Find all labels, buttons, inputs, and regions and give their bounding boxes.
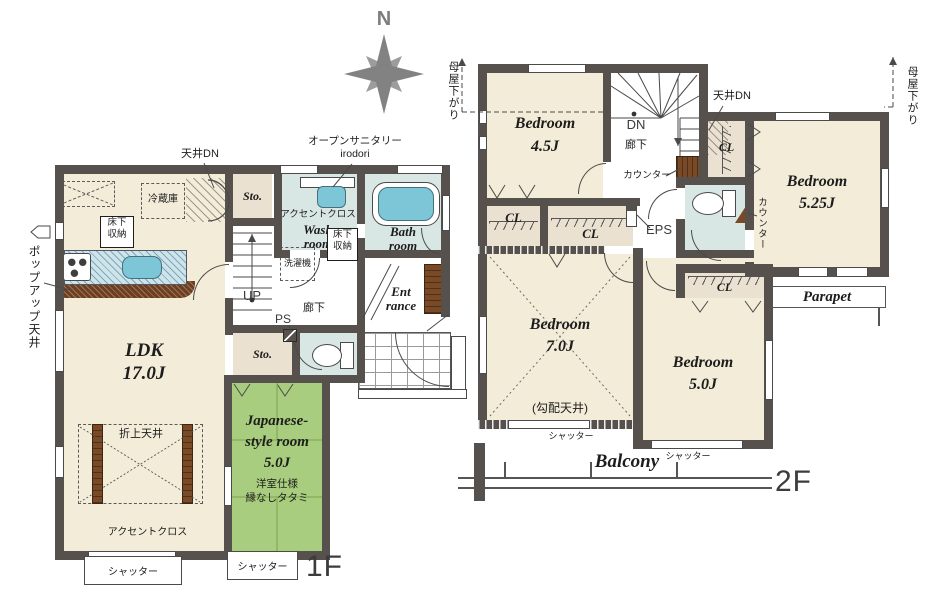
wall xyxy=(441,165,450,317)
wall xyxy=(676,177,754,185)
down-label: DN xyxy=(620,118,652,133)
accent-cross-ldk-label: アクセントクロス xyxy=(100,527,195,539)
window xyxy=(775,112,830,121)
open-sanitary-sublabel: irodori xyxy=(298,148,412,160)
wall xyxy=(55,165,450,174)
pantry-dashed-box xyxy=(57,181,115,207)
wall xyxy=(274,250,290,258)
window xyxy=(55,222,64,240)
window xyxy=(836,267,868,277)
shutter-label: シャッター xyxy=(238,558,288,573)
storage-2-label: Sto. xyxy=(233,348,292,360)
hallway-label-1f: 廊下 xyxy=(296,302,332,315)
shutter-box: シャッター xyxy=(227,551,298,580)
wall xyxy=(478,246,605,254)
stove-icon xyxy=(63,253,91,281)
window xyxy=(508,420,590,429)
closet-1-label: CL xyxy=(487,211,540,224)
wall xyxy=(676,264,685,298)
floor-2-label: 2F xyxy=(775,465,812,499)
counter-label-toilet: カウンター xyxy=(752,192,766,254)
wall xyxy=(478,64,708,73)
bedroom-45-name: Bedroom xyxy=(497,116,593,132)
bathtub-water xyxy=(378,187,434,221)
floor-1-label: 1F xyxy=(306,550,343,584)
kitchen-sink-icon xyxy=(122,256,162,279)
refrigerator-label: 冷蔵庫 xyxy=(142,194,184,206)
window xyxy=(479,110,487,124)
parapet-stub xyxy=(878,308,880,326)
balcony-post xyxy=(676,462,678,478)
up-label: UP xyxy=(236,289,268,304)
door-arc xyxy=(648,189,677,219)
wall xyxy=(224,375,365,383)
ceiling-down-closet-hatch xyxy=(186,178,230,222)
balcony-rail xyxy=(458,487,772,489)
ceiling-down-label-2f: 天井DN xyxy=(704,90,760,103)
japanese-room-label-1: Japanese- xyxy=(227,414,327,429)
compass-north-label: N xyxy=(370,8,398,31)
window xyxy=(55,310,64,372)
window xyxy=(479,136,487,150)
pipe-space-box xyxy=(283,329,297,342)
balcony-label: Balcony xyxy=(585,452,669,471)
accent-cross-wash-label: アクセントクロス xyxy=(272,210,364,221)
underfloor-storage-line2: 収納 xyxy=(328,241,357,253)
bedroom-50-name: Bedroom xyxy=(655,355,751,371)
parapet-label: Parapet xyxy=(782,290,872,305)
hallway-label-2f: 廊下 xyxy=(618,139,654,152)
underfloor-storage-box: 床下 収納 xyxy=(327,228,358,261)
bedroom-70-size: 7.0J xyxy=(512,339,608,355)
japanese-room-size: 5.0J xyxy=(227,456,327,471)
shutter-label-2f: シャッター xyxy=(663,451,713,461)
moya-sagari-label-right: 母屋下がり xyxy=(902,50,918,142)
washing-machine-label: 洗濯機 xyxy=(281,258,314,268)
wall xyxy=(540,198,548,248)
bedroom-45-size: 4.5J xyxy=(497,139,593,155)
window xyxy=(280,165,318,174)
window xyxy=(528,64,586,73)
wall xyxy=(357,258,365,383)
toilet-bowl-icon xyxy=(692,192,724,215)
coffered-ceiling-label: 折上天井 xyxy=(110,428,172,441)
window xyxy=(397,165,443,174)
eps-label: EPS xyxy=(640,223,678,238)
room-bedroom-525 xyxy=(754,121,880,267)
room-bedroom-70 xyxy=(487,254,633,420)
eps-shaft xyxy=(626,204,637,227)
bedroom-50-size: 5.0J xyxy=(655,377,751,393)
underfloor-storage-line2: 収納 xyxy=(101,229,133,241)
sloped-ceiling-label: (勾配天井) xyxy=(510,402,610,416)
bath-room-label-1: Bath xyxy=(365,225,441,238)
underfloor-storage-line1: 床下 xyxy=(101,217,133,229)
bedroom-525-name: Bedroom xyxy=(769,174,865,190)
bedroom-70-name: Bedroom xyxy=(512,317,608,333)
wall xyxy=(322,383,330,560)
underfloor-storage-box: 床下 収納 xyxy=(100,216,134,248)
storage-1-label: Sto. xyxy=(233,190,272,202)
ldk-name-label: LDK xyxy=(92,341,196,360)
ldk-size-label: 17.0J xyxy=(92,364,196,383)
ceiling-beam xyxy=(92,424,103,504)
compass-rose-icon xyxy=(344,34,424,114)
wash-basin-icon xyxy=(317,186,346,208)
open-sanitary-label: オープンサニタリー xyxy=(298,135,412,147)
wall xyxy=(676,264,773,273)
floorplan-canvas: シャッター シャッター xyxy=(0,0,931,601)
balcony-side-wall xyxy=(474,443,485,501)
ceiling-down-label-1f: 天井DN xyxy=(168,148,232,161)
popup-ceiling-label: ポップアップ天井 xyxy=(22,232,40,362)
closet-2-label: CL xyxy=(548,227,633,240)
japanese-room-note-1: 洋室仕様 xyxy=(227,478,327,490)
wall xyxy=(478,198,640,206)
toilet-tank-icon xyxy=(722,190,736,217)
window xyxy=(479,316,487,374)
japanese-room-note-2: 縁なしタタミ xyxy=(227,492,327,504)
bedroom-525-size: 5.25J xyxy=(769,196,865,212)
shutter-label-2f: シャッター xyxy=(546,431,596,441)
shutter-box: シャッター xyxy=(84,556,182,585)
window xyxy=(881,168,889,208)
entrance-label-1: Ent xyxy=(368,285,434,298)
shutter-label: シャッター xyxy=(108,563,158,578)
porch-bottom-step xyxy=(358,389,467,399)
window xyxy=(765,340,773,400)
toilet-tank-icon xyxy=(340,342,354,369)
window xyxy=(651,440,743,449)
pipe-space-label: PS xyxy=(270,313,296,327)
window xyxy=(798,267,828,277)
entrance-label-2: rance xyxy=(368,299,434,312)
closet-tall-label: CL xyxy=(708,141,745,153)
porch-side-step xyxy=(451,336,466,392)
balcony-post xyxy=(504,462,506,478)
moya-sagari-label-left: 母屋下がり xyxy=(443,48,459,134)
counter-label-stairs: カウンター xyxy=(620,171,674,182)
japanese-room-label-2: style room xyxy=(227,435,327,450)
window xyxy=(442,195,450,231)
bath-room-label-2: room xyxy=(365,239,441,252)
underfloor-storage-line1: 床下 xyxy=(328,229,357,241)
window xyxy=(55,446,64,478)
wall xyxy=(633,248,643,448)
closet-3-label: CL xyxy=(685,281,764,293)
wall xyxy=(603,64,611,162)
ceiling-beam xyxy=(182,424,193,504)
